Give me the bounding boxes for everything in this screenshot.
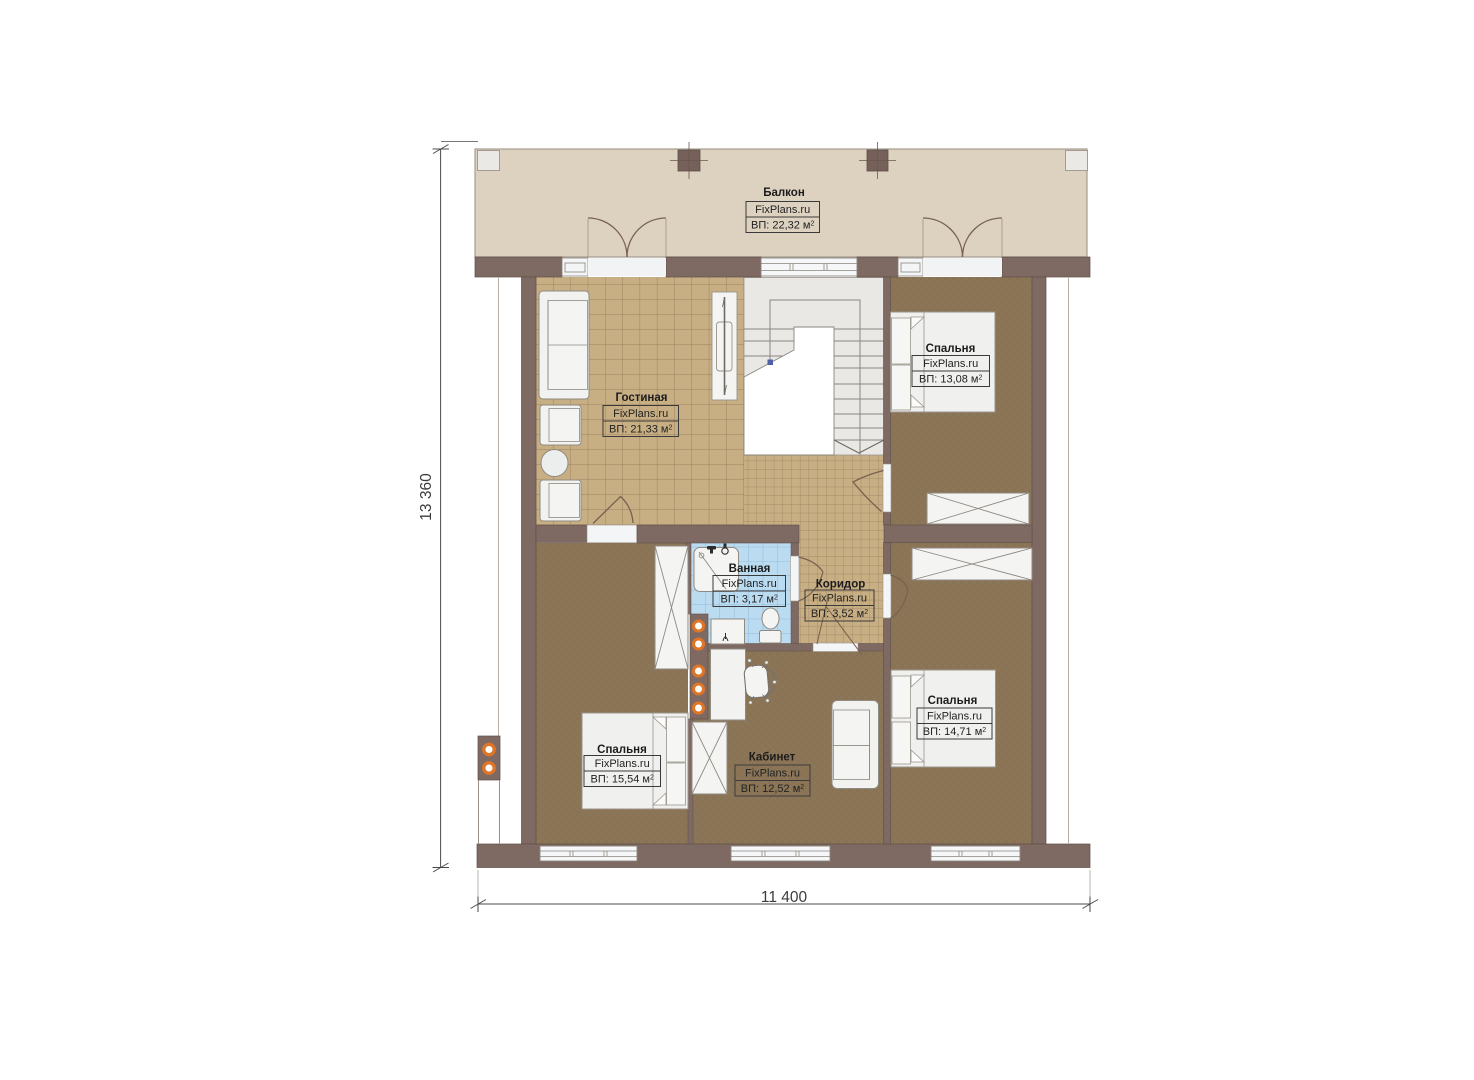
- svg-text:ВП: 13,08 м2: ВП: 13,08 м2: [919, 374, 983, 386]
- svg-text:ВП: 15,54 м2: ВП: 15,54 м2: [590, 774, 654, 786]
- svg-text:ВП: 14,71 м2: ВП: 14,71 м2: [923, 726, 987, 738]
- svg-text:13 360: 13 360: [418, 473, 435, 521]
- svg-text:FixPlans.ru: FixPlans.ru: [595, 758, 650, 770]
- svg-text:ВП: 22,32 м2: ВП: 22,32 м2: [751, 220, 815, 232]
- svg-text:ВП: 21,33 м2: ВП: 21,33 м2: [609, 424, 673, 436]
- svg-text:ВП: 12,52 м2: ВП: 12,52 м2: [741, 783, 805, 795]
- svg-text:FixPlans.ru: FixPlans.ru: [812, 593, 867, 605]
- svg-text:ВП: 3,52 м2: ВП: 3,52 м2: [811, 608, 868, 620]
- svg-text:Спальня: Спальня: [928, 695, 978, 707]
- svg-text:FixPlans.ru: FixPlans.ru: [755, 204, 810, 216]
- svg-text:ВП: 3,17 м2: ВП: 3,17 м2: [721, 594, 778, 606]
- svg-text:11 400: 11 400: [761, 889, 808, 906]
- svg-text:Спальня: Спальня: [597, 744, 647, 756]
- svg-text:FixPlans.ru: FixPlans.ru: [722, 578, 777, 590]
- svg-text:Гостиная: Гостиная: [616, 392, 668, 404]
- svg-text:FixPlans.ru: FixPlans.ru: [923, 358, 978, 370]
- svg-text:Коридор: Коридор: [816, 579, 866, 591]
- svg-text:FixPlans.ru: FixPlans.ru: [613, 408, 668, 420]
- svg-text:Кабинет: Кабинет: [749, 752, 796, 764]
- svg-text:Спальня: Спальня: [926, 343, 976, 355]
- svg-text:FixPlans.ru: FixPlans.ru: [927, 711, 982, 723]
- svg-text:Балкон: Балкон: [763, 187, 805, 199]
- svg-text:Ванная: Ванная: [729, 563, 771, 575]
- svg-text:FixPlans.ru: FixPlans.ru: [745, 768, 800, 780]
